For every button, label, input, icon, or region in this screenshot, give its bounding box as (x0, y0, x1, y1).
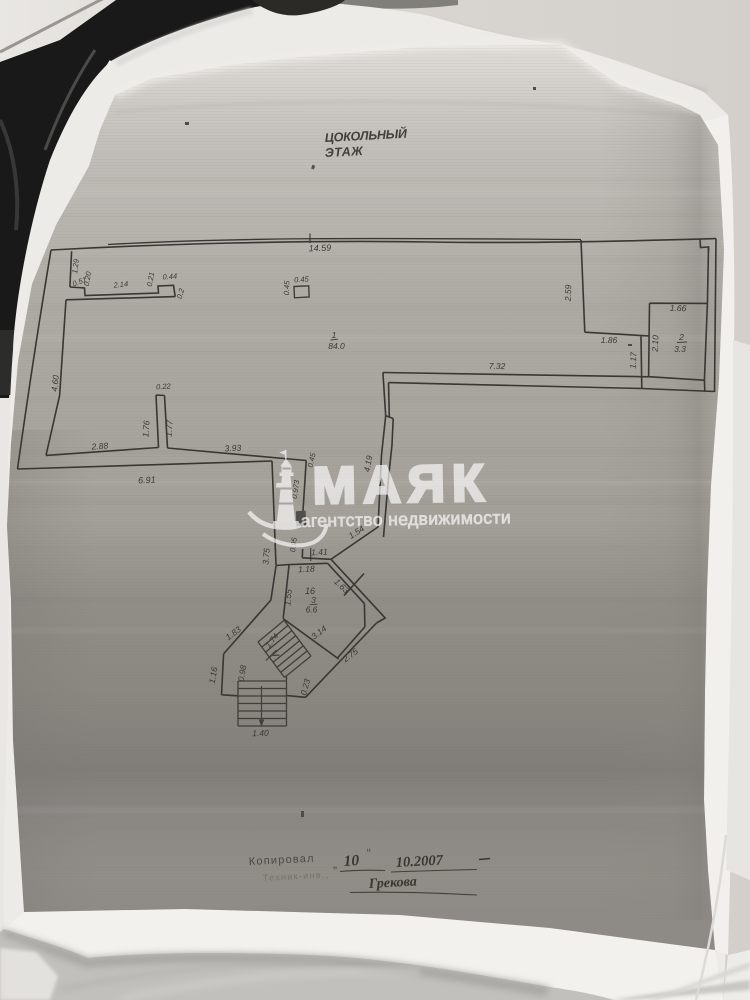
svg-text:1.29: 1.29 (70, 258, 81, 274)
svg-text:0.45: 0.45 (294, 275, 310, 285)
svg-text:4.60: 4.60 (49, 374, 61, 392)
svg-text:84.0: 84.0 (328, 341, 345, 351)
svg-text:1.17: 1.17 (628, 352, 639, 369)
svg-text:0.45: 0.45 (282, 280, 292, 296)
svg-text:0.44: 0.44 (162, 272, 177, 282)
svg-text:агентство недвижимости: агентство недвижимости (301, 507, 512, 531)
svg-text:1.18: 1.18 (298, 564, 315, 575)
svg-text:“: “ (366, 846, 371, 860)
svg-text:2.59: 2.59 (563, 284, 574, 302)
svg-text:МАЯК: МАЯК (312, 454, 491, 515)
svg-text:1.66: 1.66 (670, 303, 687, 314)
svg-text:2.88: 2.88 (90, 440, 108, 451)
svg-text:ЭТАЖ: ЭТАЖ (324, 144, 364, 160)
svg-text:2: 2 (678, 332, 684, 342)
svg-text:10: 10 (343, 852, 360, 870)
svg-text:3: 3 (311, 595, 316, 605)
svg-text:1.41: 1.41 (311, 547, 328, 558)
svg-text:3.75: 3.75 (260, 547, 271, 565)
svg-text:1: 1 (332, 330, 337, 340)
svg-text:3.93: 3.93 (224, 443, 241, 454)
svg-text:10.2007: 10.2007 (395, 853, 444, 871)
svg-text:1.76: 1.76 (140, 420, 151, 437)
svg-text:0.22: 0.22 (156, 382, 172, 392)
svg-text:7.32: 7.32 (489, 361, 506, 371)
svg-text:1.77: 1.77 (163, 419, 174, 436)
svg-text:6.6: 6.6 (306, 605, 318, 615)
svg-text:6.91: 6.91 (138, 475, 156, 486)
svg-text:Грекова: Грекова (367, 875, 417, 893)
svg-text:14.59: 14.59 (308, 243, 331, 254)
svg-text:1.55: 1.55 (282, 588, 293, 606)
svg-text:2.10: 2.10 (650, 335, 661, 353)
svg-text:2.14: 2.14 (112, 279, 128, 290)
svg-text:3.3: 3.3 (674, 344, 686, 354)
svg-text:„: „ (332, 857, 337, 871)
svg-text:1.40: 1.40 (252, 728, 269, 739)
svg-text:1.86: 1.86 (601, 335, 618, 345)
